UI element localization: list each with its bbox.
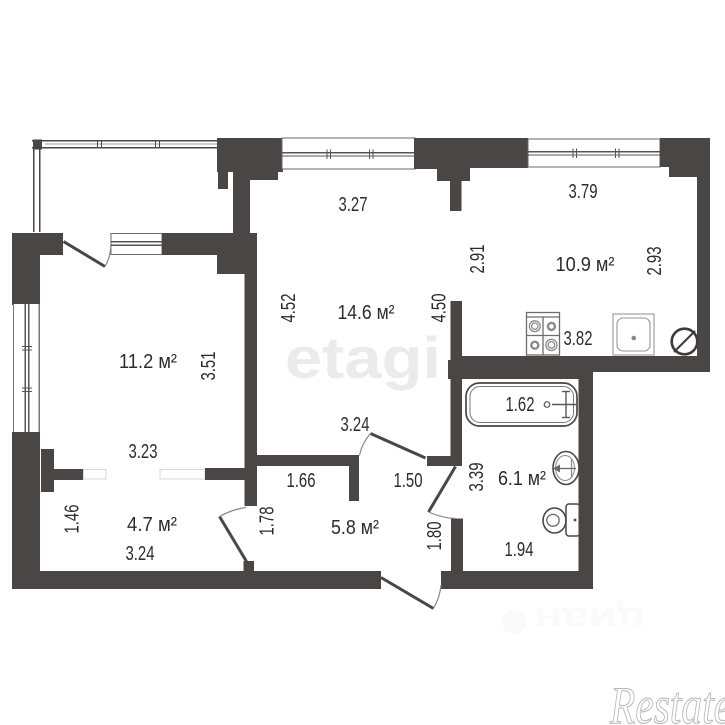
svg-text:10.9 м²: 10.9 м² xyxy=(556,254,615,276)
svg-text:5.8 м²: 5.8 м² xyxy=(331,517,379,539)
svg-text:11.2 м²: 11.2 м² xyxy=(119,351,177,373)
svg-text:1.78: 1.78 xyxy=(257,507,279,536)
svg-text:3.24: 3.24 xyxy=(126,543,155,565)
svg-text:4.7 м²: 4.7 м² xyxy=(127,514,177,536)
svg-text:3.27: 3.27 xyxy=(339,194,368,216)
svg-text:etagi: etagi xyxy=(285,326,441,391)
svg-text:3.82: 3.82 xyxy=(564,328,593,350)
svg-text:1.62: 1.62 xyxy=(506,394,535,416)
svg-text:4.52: 4.52 xyxy=(278,294,300,323)
svg-text:1.46: 1.46 xyxy=(62,505,84,534)
svg-text:3.24: 3.24 xyxy=(341,414,370,436)
svg-text:циан: циан xyxy=(534,600,646,638)
svg-text:3.23: 3.23 xyxy=(129,441,158,463)
svg-text:3.79: 3.79 xyxy=(569,181,598,203)
svg-text:14.6 м²: 14.6 м² xyxy=(338,302,395,324)
svg-text:6.1 м²: 6.1 м² xyxy=(498,468,546,490)
svg-text:1.80: 1.80 xyxy=(424,522,446,551)
svg-text:2.93: 2.93 xyxy=(644,247,666,276)
svg-text:1.66: 1.66 xyxy=(287,470,316,492)
svg-text:3.39: 3.39 xyxy=(466,463,488,492)
svg-text:1.50: 1.50 xyxy=(394,470,423,492)
svg-text:1.94: 1.94 xyxy=(505,539,534,561)
svg-text:3.51: 3.51 xyxy=(198,352,220,381)
svg-text:4.50: 4.50 xyxy=(429,294,451,323)
svg-text:Restate: Restate xyxy=(609,677,725,725)
svg-text:2.91: 2.91 xyxy=(467,245,489,274)
